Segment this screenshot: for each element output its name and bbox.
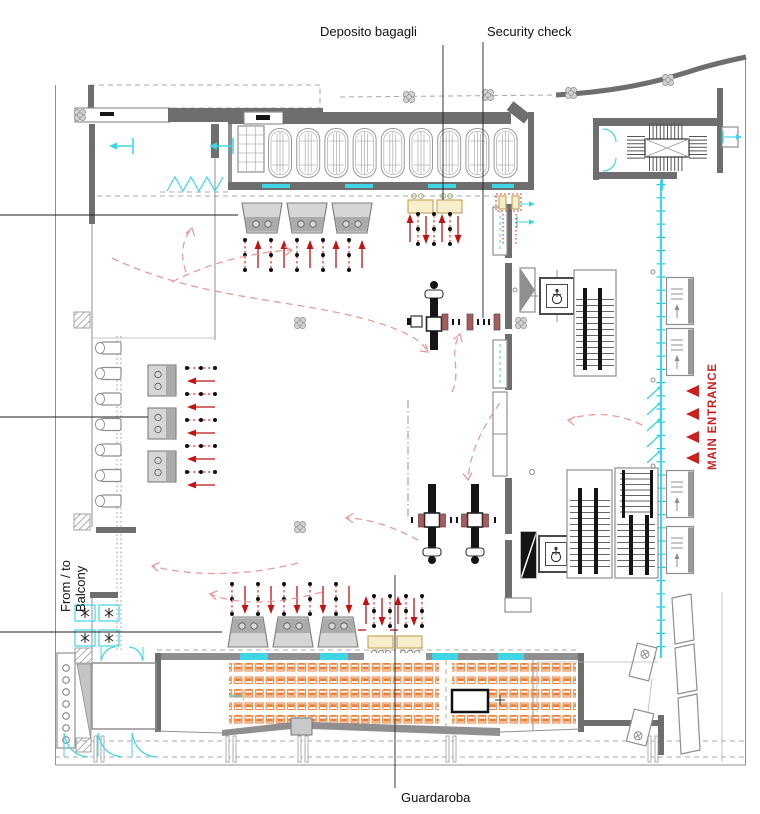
exterior-columns	[94, 736, 658, 762]
top-desks	[242, 203, 372, 233]
exterior-ramps	[667, 278, 701, 755]
luggage-racks	[269, 129, 518, 178]
vestibule-doors	[109, 138, 233, 192]
lower-turnstiles	[411, 484, 496, 564]
label-security-check: Security check	[487, 24, 572, 39]
coat-racks	[229, 663, 576, 726]
main-entrance-doors	[647, 387, 661, 464]
door-arrow-icon	[109, 138, 133, 154]
deposito-queue	[407, 212, 462, 246]
entrance-arrow-icon	[686, 452, 699, 464]
upper-staircase	[574, 270, 616, 376]
bottom-left-block	[57, 647, 156, 757]
top-queue	[243, 238, 365, 272]
door-leaf-icon	[647, 387, 661, 400]
floor-plan-drawing	[0, 0, 760, 814]
spiral-staircase	[636, 131, 698, 163]
door-arrow-icon	[517, 198, 535, 210]
label-from-to-balcony: From / to Balcony	[58, 560, 88, 612]
lower-staircase-b	[615, 468, 658, 578]
door-leaf-icon	[647, 451, 661, 464]
elevator	[540, 278, 574, 314]
door-arc-icon	[603, 129, 616, 142]
deposito-counters	[408, 194, 462, 213]
spiral-stair-room	[593, 88, 742, 190]
label-guardaroba: Guardaroba	[401, 790, 470, 805]
entrance-arrow-icon	[686, 385, 699, 397]
guardaroba-queue	[358, 594, 424, 630]
entrance-arrow-icon	[686, 431, 699, 443]
bottom-queue	[230, 582, 352, 616]
entrance-arrow-icon	[686, 408, 699, 420]
middle-desks	[148, 365, 176, 482]
door-arrow-icon	[517, 216, 535, 228]
door-arc-icon	[603, 158, 616, 171]
door-leaf-icon	[647, 435, 661, 448]
main-entrance-arrows	[686, 385, 699, 464]
middle-queue	[185, 366, 217, 488]
locker-grid	[238, 126, 264, 172]
floor-plan: Deposito bagagli Security check Guardaro…	[0, 0, 760, 814]
bottom-desks	[228, 617, 358, 647]
hall-columns	[294, 317, 526, 532]
cloakroom	[155, 653, 584, 732]
lower-staircase-a	[567, 470, 612, 578]
info-desk	[452, 690, 488, 712]
curved-facade	[340, 57, 746, 103]
lower-elevator-block	[521, 532, 573, 578]
door-leaf-icon	[647, 419, 661, 432]
label-main-entrance: MAIN ENTRANCE	[707, 363, 719, 470]
baggage-storage-room	[228, 101, 534, 190]
label-deposito-bagagli: Deposito bagagli	[320, 24, 417, 39]
upper-turnstile	[407, 281, 500, 350]
